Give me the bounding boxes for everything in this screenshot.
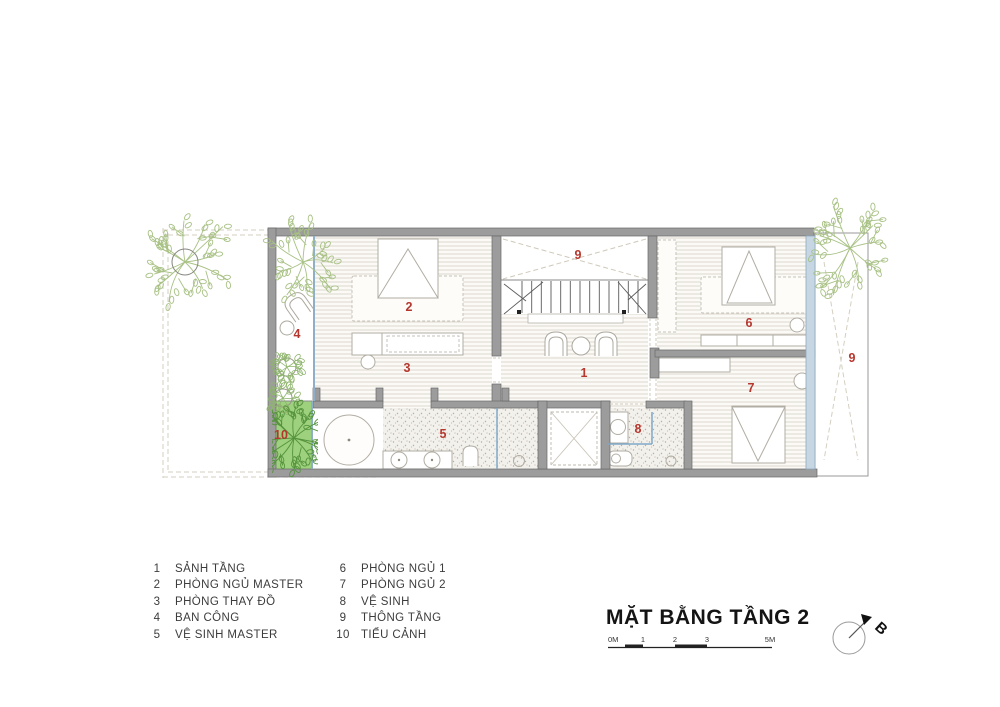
legend-num: 9 — [334, 612, 352, 624]
stool — [361, 355, 375, 369]
floor-plan-drawing: 1 2 3 4 5 6 7 8 9 9 10 — [0, 0, 1000, 560]
legend-label: PHÒNG NGỦ 1 — [361, 563, 446, 575]
legend-num: 4 — [148, 612, 166, 624]
north-label: B — [871, 619, 891, 639]
legend-label: VỆ SINH — [361, 596, 410, 608]
wall-stub — [431, 388, 438, 401]
wall-bath2-top — [646, 401, 686, 408]
legend-num: 3 — [148, 596, 166, 608]
legend-item: 5VỆ SINH MASTER — [148, 629, 303, 645]
stair-treads — [522, 281, 638, 313]
room-number-1: 1 — [581, 366, 588, 380]
armchair — [595, 332, 617, 356]
legend-num: 7 — [334, 579, 352, 591]
legend-label: PHÒNG NGỦ 2 — [361, 579, 446, 591]
room-number-3: 3 — [404, 361, 411, 375]
legend-item: 1SẢNH TẦNG — [148, 563, 303, 579]
legend-num: 2 — [148, 579, 166, 591]
legend-item: 10TIỂU CẢNH — [334, 629, 446, 645]
legend-item: 9THÔNG TẦNG — [334, 612, 446, 628]
legend-num: 6 — [334, 563, 352, 575]
plan-title: MẶT BẰNG TẦNG 2 — [606, 606, 810, 630]
legend-label: TIỂU CẢNH — [361, 629, 427, 641]
legend-item: 8VỆ SINH — [334, 596, 446, 612]
wall-shaft-right — [601, 401, 610, 469]
tree-icon — [145, 213, 231, 311]
legend-item: 6PHÒNG NGỦ 1 — [334, 563, 446, 579]
legend-item: 4BAN CÔNG — [148, 612, 303, 628]
legend-label: VỆ SINH MASTER — [175, 629, 278, 641]
scale-bar: 0M 1 2 3 5M — [606, 634, 791, 652]
bed-master — [378, 239, 438, 298]
room-number-9-right: 9 — [849, 351, 856, 365]
compass-arrowhead-icon — [861, 614, 872, 625]
legend-num: 5 — [148, 629, 166, 641]
balcony-furniture — [274, 289, 314, 407]
room-number-5: 5 — [440, 427, 447, 441]
wall-bedroom-divider — [655, 350, 815, 357]
legend-column-1: 1SẢNH TẦNG 2PHÒNG NGỦ MASTER 3PHÒNG THAY… — [148, 563, 303, 645]
armchair — [545, 332, 567, 356]
room-number-10: 10 — [274, 428, 288, 442]
sink — [611, 420, 626, 435]
room-number-4: 4 — [294, 327, 301, 341]
scale-label-3: 3 — [705, 635, 709, 644]
plant-pot — [790, 318, 804, 332]
legend-column-2: 6PHÒNG NGỦ 1 7PHÒNG NGỦ 2 8VỆ SINH 9THÔN… — [334, 563, 446, 645]
legend-num: 8 — [334, 596, 352, 608]
wall-stub — [376, 388, 383, 401]
room-number-6: 6 — [746, 316, 753, 330]
console — [701, 335, 809, 346]
floor-plan-sheet: 1 2 3 4 5 6 7 8 9 9 10 1SẢNH TẦNG 2PHÒNG… — [0, 0, 1000, 707]
legend-label: PHÒNG THAY ĐỒ — [175, 596, 275, 608]
legend-label: BAN CÔNG — [175, 612, 240, 624]
wall-bath-b — [431, 401, 538, 408]
legend-label: PHÒNG NGỦ MASTER — [175, 579, 303, 591]
closet — [658, 240, 676, 332]
skylight-shaft — [547, 408, 601, 469]
void-right — [815, 233, 868, 476]
wall-shaft-left — [538, 401, 547, 469]
room-number-8: 8 — [635, 422, 642, 436]
wall-bath-a — [313, 401, 383, 408]
scale-label-2: 2 — [673, 635, 677, 644]
side-table — [572, 337, 590, 355]
scale-label-1: 1 — [641, 635, 645, 644]
room-number-7: 7 — [748, 381, 755, 395]
wall-stair-right — [648, 236, 657, 318]
bed-2 — [732, 406, 785, 463]
legend-item: 7PHÒNG NGỦ 2 — [334, 579, 446, 595]
toilet — [463, 446, 478, 466]
title-block: MẶT BẰNG TẦNG 2 0M 1 2 3 5M — [606, 606, 810, 652]
scale-label-4: 5M — [765, 635, 775, 644]
wall-bath2-right — [684, 401, 692, 469]
small-table — [280, 321, 294, 335]
legend-num: 1 — [148, 563, 166, 575]
wall-hall-left — [492, 236, 501, 356]
glass-facade-right — [806, 236, 815, 469]
wall-shaft-top — [538, 401, 610, 408]
wall-bottom — [268, 469, 817, 477]
legend-item: 2PHÒNG NGỦ MASTER — [148, 579, 303, 595]
desk — [658, 358, 730, 372]
legend-item: 3PHÒNG THAY ĐỒ — [148, 596, 303, 612]
scale-label-0: 0M — [608, 635, 618, 644]
north-arrow: B — [816, 604, 896, 668]
room-number-2: 2 — [406, 300, 413, 314]
floor-hall — [501, 314, 648, 408]
legend-label: THÔNG TẦNG — [361, 612, 441, 624]
legend-label: SẢNH TẦNG — [175, 563, 245, 575]
wall-top — [268, 228, 814, 236]
wall-stub — [502, 388, 509, 401]
room-number-9-top: 9 — [575, 248, 582, 262]
legend-num: 10 — [334, 629, 352, 641]
